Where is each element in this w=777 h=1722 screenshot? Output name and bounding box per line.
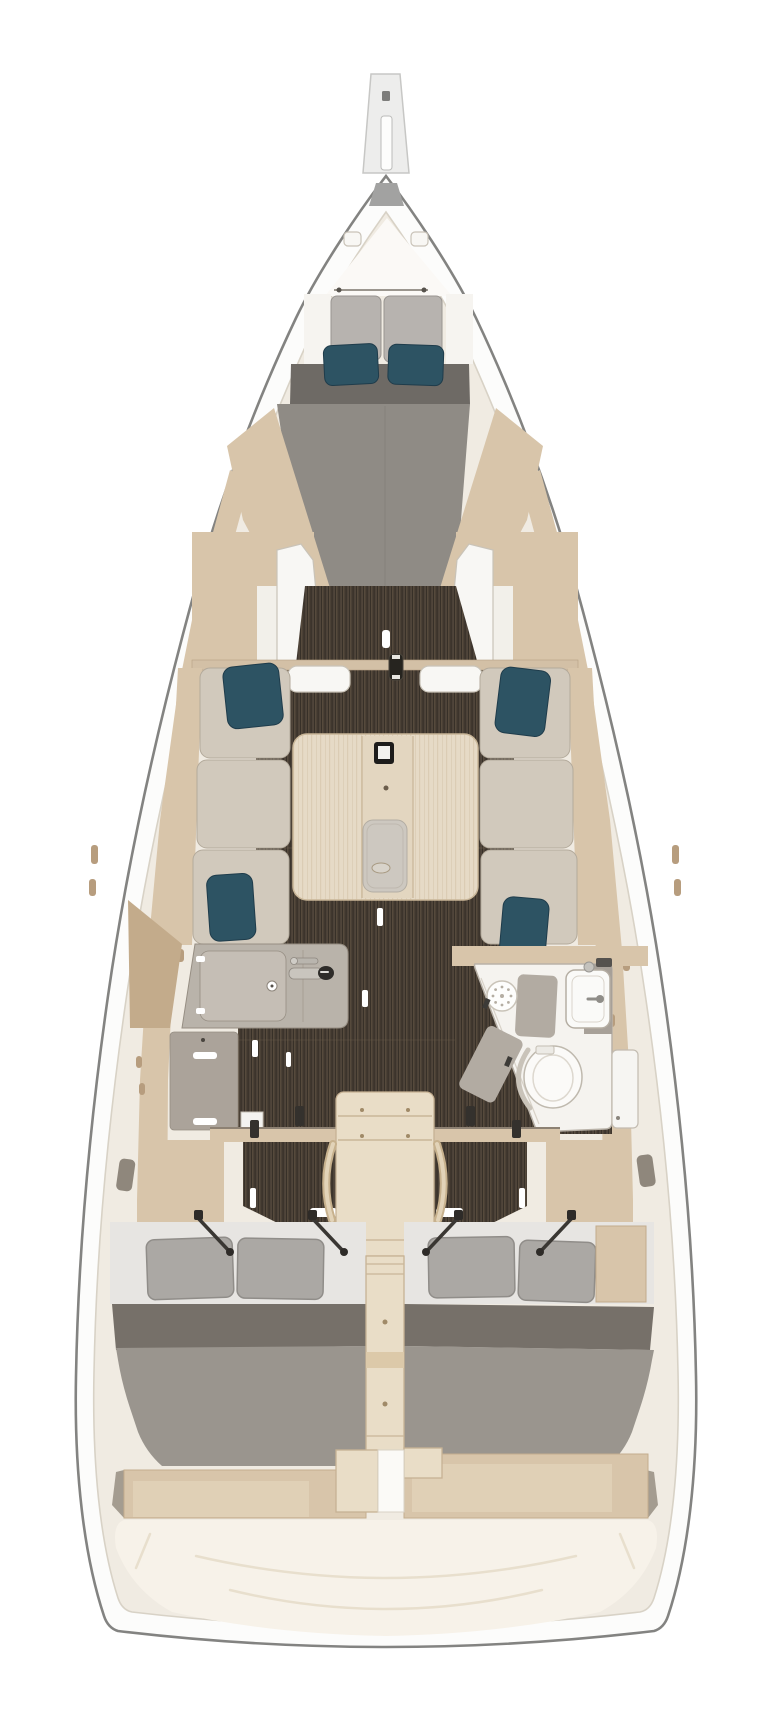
- bowsprit: [363, 74, 409, 173]
- head-door-handle: [616, 1116, 620, 1120]
- stern-center-slot: [378, 1450, 404, 1512]
- head-forward-wall: [452, 946, 648, 966]
- aft-berth-blanket-port: [116, 1346, 366, 1466]
- mast-post-cap-top: [392, 655, 400, 659]
- page: { "figure": { "type": "sailboat-interior…: [0, 0, 777, 1722]
- companionway-steps-upper: [336, 1092, 434, 1242]
- cabinet-handle-bottom: [193, 1118, 217, 1125]
- cover-hinge-bottom: [196, 1008, 205, 1014]
- galley-dial-center: [271, 985, 274, 988]
- table-lamp-inner: [378, 746, 390, 759]
- aft-berth-head-band-port: [112, 1304, 366, 1350]
- faucet-lever: [289, 968, 323, 979]
- hatch-hinge-left: [337, 288, 342, 293]
- tray-emblem: [372, 863, 390, 873]
- aft-berth-head-band-starboard: [404, 1304, 654, 1350]
- faucet-bar-knob: [291, 958, 298, 965]
- boat-floor-plan: [0, 0, 777, 1722]
- basin-tap-chrome: [584, 962, 594, 972]
- hatch-hinge-right: [422, 288, 427, 293]
- toilet-hinge: [536, 1046, 554, 1054]
- head-door-open: [612, 1050, 638, 1128]
- spine-pin-1: [383, 1320, 388, 1325]
- cabinet-knob: [201, 1038, 205, 1042]
- salon-step-left: [288, 666, 350, 692]
- table-fitting: [384, 786, 389, 791]
- stern-locker-port-panel: [133, 1481, 309, 1517]
- aft-bulkhead-port: [140, 1140, 224, 1222]
- aft-bulkhead-starboard: [546, 1140, 630, 1222]
- bow-cap-fitting: [369, 183, 404, 206]
- gray-pillow-3: [428, 1236, 515, 1297]
- mast-slot: [382, 630, 390, 648]
- salon-table: [293, 734, 478, 900]
- teal-pillow-salon-fwd-starboard: [494, 666, 552, 738]
- salon-step-right: [420, 666, 482, 692]
- table-tray: [363, 820, 407, 892]
- basin-soap-tray: [596, 958, 612, 967]
- bowsprit-fitting: [382, 91, 390, 101]
- cover-hinge-top: [196, 956, 205, 962]
- stern-center-tab-port: [336, 1450, 378, 1512]
- faucet-knob-highlight: [320, 971, 329, 973]
- berth-shelf-right: [446, 294, 473, 364]
- shower-mat-upper: [515, 974, 558, 1038]
- forward-passage-floor: [296, 586, 478, 664]
- stern-center-tab-starboard: [404, 1448, 442, 1478]
- aft-corner-locker: [596, 1226, 646, 1302]
- teal-pillow-fwd-left: [323, 343, 379, 386]
- bow-cleat-left: [344, 232, 361, 246]
- spine-step: [366, 1352, 404, 1368]
- gray-pillow-1: [146, 1237, 234, 1300]
- gray-pillow-4: [518, 1240, 596, 1303]
- cabinet-handle-top: [193, 1052, 217, 1059]
- teal-pillow-fwd-right: [388, 344, 444, 386]
- gray-pillow-2: [237, 1238, 324, 1299]
- spine-pin-2: [383, 1402, 388, 1407]
- stern: [112, 1448, 658, 1636]
- teal-pillow-salon-fwd-port: [222, 662, 284, 730]
- teal-pillow-salon-aft-port: [206, 873, 256, 942]
- bowsprit-slot: [381, 116, 392, 170]
- mast-post-cap-bottom: [392, 675, 400, 679]
- galley-lower-cabinet: [170, 1032, 238, 1130]
- bow-cleat-right: [411, 232, 428, 246]
